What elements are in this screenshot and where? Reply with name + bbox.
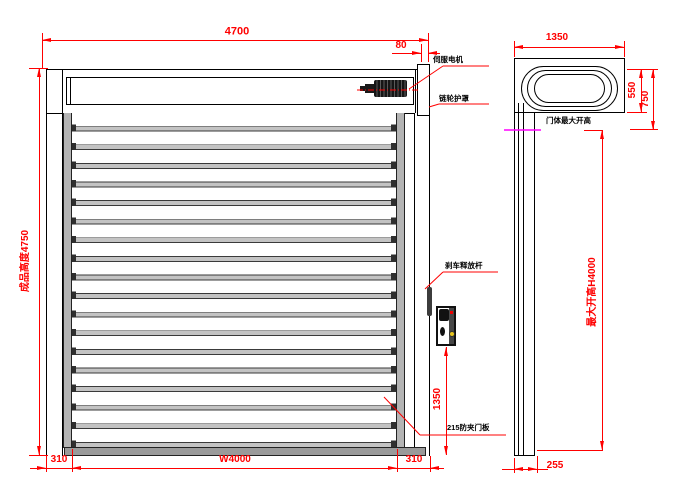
dim-text-side-width: 1350 <box>546 33 568 43</box>
rolled-curtain-inner-ring <box>534 74 605 103</box>
dim-text-header: 750 <box>641 91 651 108</box>
dim-arrow <box>72 466 81 470</box>
dim-arrow <box>444 347 448 356</box>
dim-arrow <box>430 466 439 470</box>
dim-line-opening-width <box>72 468 397 469</box>
control-box-red-indicator <box>450 311 453 314</box>
ext-line <box>421 44 422 62</box>
dim-line-controller-height <box>446 347 447 455</box>
dim-arrow <box>37 446 41 455</box>
dim-arrow <box>42 38 51 42</box>
ext-line <box>514 41 515 57</box>
dim-text-max-open: 最大开高H4000 <box>588 257 598 326</box>
label-brake-release: 刹车释放杆 <box>445 262 483 270</box>
servo-motor-body <box>374 80 407 97</box>
dim-arrow <box>412 51 421 55</box>
side-curtain-line-2 <box>523 113 524 455</box>
dim-arrow <box>600 441 604 450</box>
guide-rail-left <box>63 113 72 448</box>
front-right-column-outer-line <box>429 69 430 456</box>
side-column-bottom-line <box>514 455 535 456</box>
dim-arrow <box>388 466 397 470</box>
side-column-outer-left-line <box>514 113 515 456</box>
front-header-roll-box <box>66 77 414 105</box>
dim-text-total-width: 4700 <box>225 27 249 38</box>
label-servo-motor: 伺服电机 <box>433 56 463 64</box>
dim-line-total-width <box>42 40 428 41</box>
sprocket-cover-box <box>417 64 430 116</box>
dim-arrow <box>444 446 448 455</box>
dim-arrow <box>514 467 523 471</box>
dim-line-side-width <box>514 47 624 48</box>
door-curtain-slats <box>71 113 396 448</box>
dim-arrow <box>600 130 604 139</box>
dim-arrow <box>651 121 655 130</box>
dim-arrow <box>615 45 624 49</box>
servo-motor-shaft <box>365 84 374 93</box>
guide-rail-right <box>396 113 405 448</box>
dim-arrow <box>651 69 655 78</box>
front-right-column-inner-line <box>414 113 415 456</box>
ext-line <box>514 458 515 473</box>
dim-arrow <box>419 38 428 42</box>
ext-line <box>430 456 431 472</box>
dim-text-left-col: 310 <box>51 455 68 465</box>
ext-line <box>428 33 429 62</box>
dim-text-roll: 550 <box>628 82 638 99</box>
control-box-knob <box>439 309 449 321</box>
label-chain-cover: 链轮护罩 <box>439 95 469 103</box>
dim-text-opening-width: W4000 <box>219 455 251 465</box>
label-max-open-line: 门体最大开高 <box>546 117 591 125</box>
dim-line-left-col <box>46 468 72 469</box>
dim-line-base-depth <box>502 469 548 470</box>
front-header-top-line <box>46 69 430 70</box>
dim-line-total-height <box>39 68 40 455</box>
dim-text-total-height: 成品高度4750 <box>21 230 31 292</box>
dim-line-right-col <box>397 468 430 469</box>
side-curtain-entry-line-1 <box>518 103 519 113</box>
ext-line <box>537 456 538 473</box>
side-column-outer-right-line <box>534 113 535 456</box>
ext-line <box>46 456 47 472</box>
dim-line-max-open <box>602 130 603 450</box>
control-box-oval-button <box>440 327 445 336</box>
dim-arrow <box>639 69 643 78</box>
dim-text-motor-ext: 80 <box>395 41 406 51</box>
ext-line <box>537 450 603 451</box>
control-box-yellow-button <box>449 331 455 337</box>
dim-arrow <box>37 68 41 77</box>
dim-text-base-depth: 255 <box>547 461 564 471</box>
dim-arrow <box>428 51 437 55</box>
front-header-right-edge-line <box>415 69 416 113</box>
dim-arrow <box>514 45 523 49</box>
front-left-column-outer-line <box>46 69 47 456</box>
ext-line <box>624 41 625 57</box>
dim-arrow <box>528 467 537 471</box>
ext-line <box>627 112 647 113</box>
side-curtain-entry-line-2 <box>523 103 524 113</box>
label-door-panel: 215防夹门板 <box>447 424 490 432</box>
dim-arrow <box>37 466 46 470</box>
technical-drawing-canvas: 4700 80 成品高度4750 310 W4000 310 1350 伺服电机… <box>0 0 680 489</box>
side-curtain-line-1 <box>518 113 519 455</box>
dim-text-right-col: 310 <box>406 455 423 465</box>
front-header-roll-box-tick <box>70 77 71 105</box>
servo-motor-shaft-tip <box>360 86 365 91</box>
dim-text-controller-height: 1350 <box>433 388 443 410</box>
brake-release-lever <box>427 287 432 316</box>
